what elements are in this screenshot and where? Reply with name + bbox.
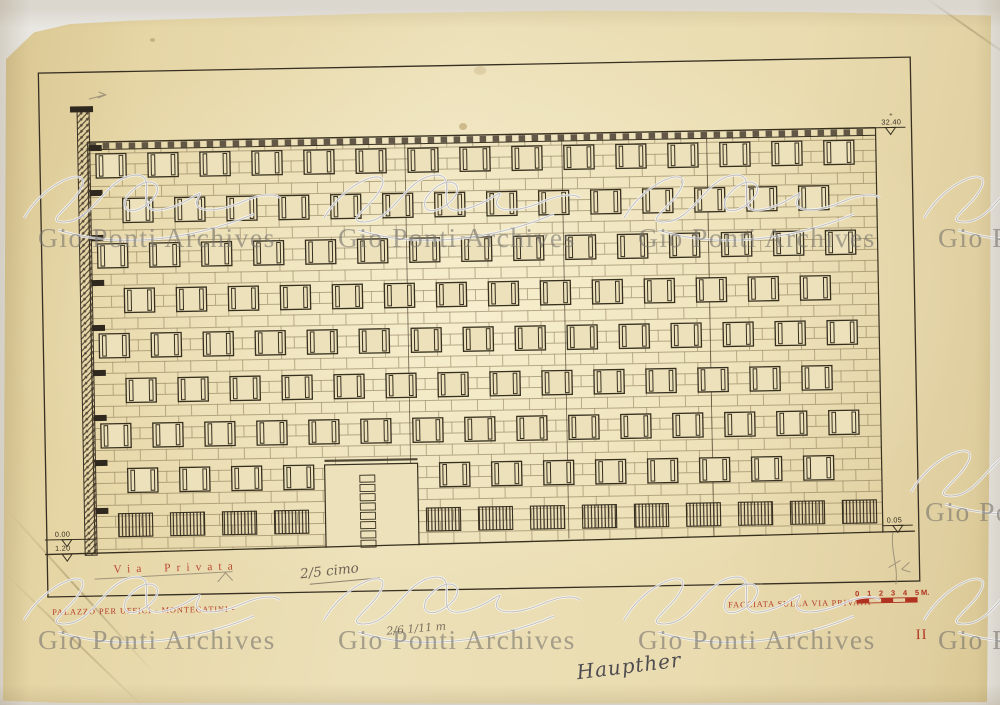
window xyxy=(540,280,570,305)
window xyxy=(440,462,470,487)
level-parapet: 32.40 xyxy=(881,117,901,126)
window xyxy=(460,147,490,172)
window xyxy=(648,458,678,483)
window xyxy=(284,465,314,490)
window xyxy=(97,243,127,268)
window xyxy=(201,242,231,267)
street-label: Via Privata xyxy=(113,560,239,575)
scanned-drawing: 012345M. PALAZZO PER UFFICI - MONTECATIN… xyxy=(0,0,1000,705)
window xyxy=(331,194,361,219)
window xyxy=(825,230,855,255)
scale-tick: 5 xyxy=(915,588,919,597)
window xyxy=(413,418,443,443)
window xyxy=(465,417,495,442)
window xyxy=(564,145,594,170)
window xyxy=(228,286,258,311)
level-parapet-plus: + xyxy=(889,112,893,118)
window xyxy=(669,233,699,258)
window xyxy=(230,376,260,401)
ground-vent xyxy=(634,504,668,528)
window xyxy=(539,190,569,215)
ground-vent xyxy=(842,500,876,524)
sheet-number: II xyxy=(916,627,928,643)
window xyxy=(673,413,703,438)
window xyxy=(383,193,413,218)
window xyxy=(777,411,807,436)
window xyxy=(180,467,210,492)
building-facade xyxy=(37,91,915,556)
ground-vent xyxy=(790,501,824,525)
window xyxy=(720,142,750,167)
window xyxy=(227,196,257,221)
scale-tick: 0 xyxy=(855,589,859,598)
ground-vent xyxy=(686,503,720,527)
window xyxy=(101,423,131,448)
window xyxy=(695,188,725,213)
window xyxy=(488,281,518,306)
window xyxy=(148,153,178,178)
window xyxy=(800,276,830,301)
level-zero: 0.00 xyxy=(55,530,71,539)
window xyxy=(99,333,129,358)
ground-vent xyxy=(274,510,308,534)
window xyxy=(435,192,465,217)
window xyxy=(721,232,751,257)
window xyxy=(359,329,389,354)
scale-tick: 3 xyxy=(891,588,895,597)
window xyxy=(803,456,833,481)
pencil-arrow xyxy=(89,92,106,99)
window xyxy=(280,285,310,310)
window xyxy=(490,371,520,396)
window xyxy=(408,148,438,173)
window xyxy=(361,419,391,444)
window xyxy=(700,457,730,482)
level-street-right: 0.05 xyxy=(887,515,903,524)
scale-tick: 2 xyxy=(879,589,883,598)
window xyxy=(253,241,283,266)
window xyxy=(463,327,493,352)
window xyxy=(411,328,441,353)
window xyxy=(751,457,781,482)
pencil-leader-right xyxy=(888,532,911,584)
window xyxy=(591,189,621,214)
window xyxy=(123,198,153,223)
window xyxy=(124,288,154,313)
window xyxy=(644,278,674,303)
window xyxy=(257,421,287,446)
window xyxy=(128,468,158,493)
window xyxy=(357,239,387,264)
window xyxy=(698,368,728,393)
window xyxy=(621,414,651,439)
window xyxy=(594,369,624,394)
window xyxy=(747,187,777,212)
drawing-content: 012345M. PALAZZO PER UFFICI - MONTECATIN… xyxy=(0,0,1000,705)
ground-vent xyxy=(426,507,460,531)
ground-vent xyxy=(582,505,616,529)
drawing-title: FACCIATA SULLA VIA PRIVATA xyxy=(728,598,871,610)
window xyxy=(725,412,755,437)
window xyxy=(616,144,646,169)
window xyxy=(309,420,339,445)
entrance-door xyxy=(325,463,420,549)
window xyxy=(126,378,156,403)
window xyxy=(517,416,547,441)
window xyxy=(802,366,832,391)
window xyxy=(619,324,649,349)
window xyxy=(592,279,622,304)
scale-tick: 4 xyxy=(903,588,908,597)
handwritten-fractions: 2/6 1/11 m xyxy=(385,620,447,638)
window xyxy=(542,370,572,395)
window xyxy=(824,140,854,165)
window xyxy=(567,325,597,350)
window xyxy=(200,152,230,177)
window xyxy=(384,283,414,308)
window xyxy=(252,151,282,176)
handwritten-ink-note: Haupther xyxy=(574,647,683,684)
window xyxy=(279,195,309,220)
window xyxy=(386,373,416,398)
window xyxy=(305,240,335,265)
window xyxy=(696,278,726,303)
window xyxy=(307,330,337,355)
window xyxy=(332,284,362,309)
window xyxy=(255,331,285,356)
elevation-drawing: 012345M. PALAZZO PER UFFICI - MONTECATIN… xyxy=(0,0,1000,705)
window xyxy=(96,153,126,178)
window xyxy=(409,238,439,263)
window xyxy=(643,188,673,213)
scale-unit: M. xyxy=(921,588,930,597)
handwritten-note-cimo: 2/5 cimo xyxy=(298,560,359,582)
window xyxy=(151,333,181,358)
window xyxy=(153,423,183,448)
window xyxy=(356,149,386,174)
window xyxy=(772,141,802,166)
window xyxy=(646,368,676,393)
window xyxy=(203,332,233,357)
window xyxy=(515,326,545,351)
window xyxy=(671,323,701,348)
ground-vent xyxy=(478,506,512,530)
window xyxy=(175,197,205,222)
window xyxy=(829,410,859,435)
window xyxy=(232,466,262,491)
window xyxy=(487,191,517,216)
window xyxy=(775,321,805,346)
window xyxy=(438,372,468,397)
window xyxy=(773,231,803,256)
level-street-left: 1.20 xyxy=(55,544,71,553)
window xyxy=(436,282,466,307)
window xyxy=(596,459,626,484)
window xyxy=(334,374,364,399)
window xyxy=(750,367,780,392)
ground-vent xyxy=(738,502,772,526)
window xyxy=(799,186,829,211)
ground-vent xyxy=(118,513,152,537)
window xyxy=(461,237,491,262)
window xyxy=(748,277,778,302)
window xyxy=(176,287,206,312)
window xyxy=(569,415,599,440)
window xyxy=(513,236,543,261)
window xyxy=(492,461,522,486)
window xyxy=(723,322,753,347)
window xyxy=(512,146,542,171)
window xyxy=(827,320,857,345)
ground-vent xyxy=(530,506,564,530)
window xyxy=(668,143,698,168)
window xyxy=(565,235,595,260)
scale-tick: 1 xyxy=(867,589,871,598)
window xyxy=(304,150,334,175)
window xyxy=(149,243,179,268)
window xyxy=(544,460,574,485)
window xyxy=(282,375,312,400)
window xyxy=(205,422,235,447)
window xyxy=(178,377,208,402)
project-title: PALAZZO PER UFFICI - MONTECATINI - xyxy=(52,605,235,617)
window xyxy=(617,234,647,259)
ground-vent xyxy=(222,511,256,535)
ground-vent xyxy=(170,512,204,536)
